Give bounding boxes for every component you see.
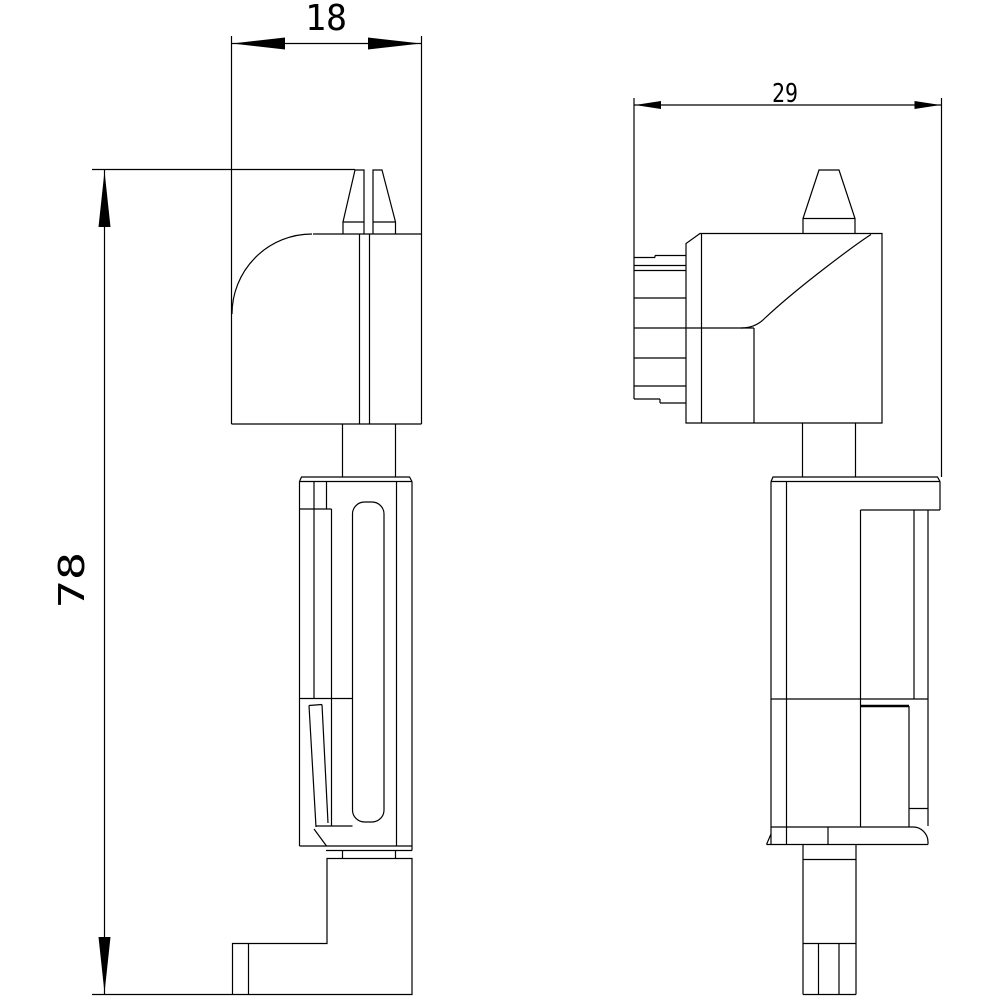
center-slot — [353, 502, 385, 822]
front-middle-body — [300, 477, 413, 859]
technical-drawing-page: 18 78 — [0, 0, 1000, 1000]
drawing-svg: 18 78 — [0, 0, 1000, 1000]
finger-lines — [634, 256, 686, 404]
arrowhead-left-icon — [635, 101, 661, 109]
dimension-value-side-depth: 29 — [772, 79, 798, 109]
latch-chamfer — [314, 829, 327, 846]
dimension-value-front-width: 18 — [305, 0, 347, 39]
housing-curved-edge — [741, 235, 871, 329]
foot-inner-lines — [803, 860, 856, 995]
side-foot — [803, 845, 856, 995]
neck-lines — [803, 423, 856, 478]
body-top-lip — [300, 477, 413, 482]
foot-outline — [803, 845, 856, 995]
side-terminal-fingers — [634, 256, 686, 404]
snap-tab-right — [373, 170, 396, 234]
dimension-side-depth: 29 — [634, 79, 942, 477]
housing-inner-lines — [634, 234, 754, 424]
body-right-step — [861, 482, 941, 828]
dimension-value-front-height: 78 — [52, 552, 93, 608]
latch-lever — [309, 705, 328, 828]
body-bottom-lip — [300, 846, 413, 851]
arrowhead-down-icon — [99, 937, 111, 993]
dimension-front-height: 78 — [52, 170, 355, 995]
front-top-housing — [232, 170, 422, 478]
arrowhead-right-icon — [368, 38, 421, 50]
snap-tab — [803, 170, 855, 234]
side-middle-body — [767, 477, 941, 845]
neck-lines — [343, 424, 396, 478]
inner-box-lines — [909, 706, 928, 827]
arrowhead-up-icon — [99, 171, 111, 227]
body-top-lip — [771, 477, 940, 482]
arrowhead-left-icon — [232, 38, 285, 50]
foot-outline — [233, 859, 413, 995]
side-top-housing — [634, 170, 882, 478]
lower-stem-lines — [343, 851, 396, 859]
side-view: 29 — [634, 79, 942, 995]
tab-slot-lines — [360, 234, 370, 424]
front-foot — [233, 859, 413, 995]
snap-tab-left — [343, 170, 364, 234]
front-view: 18 78 — [52, 0, 422, 995]
arrowhead-right-icon — [915, 101, 941, 109]
housing-corner-fillet — [232, 234, 312, 314]
body-bottom-lip — [767, 827, 929, 845]
